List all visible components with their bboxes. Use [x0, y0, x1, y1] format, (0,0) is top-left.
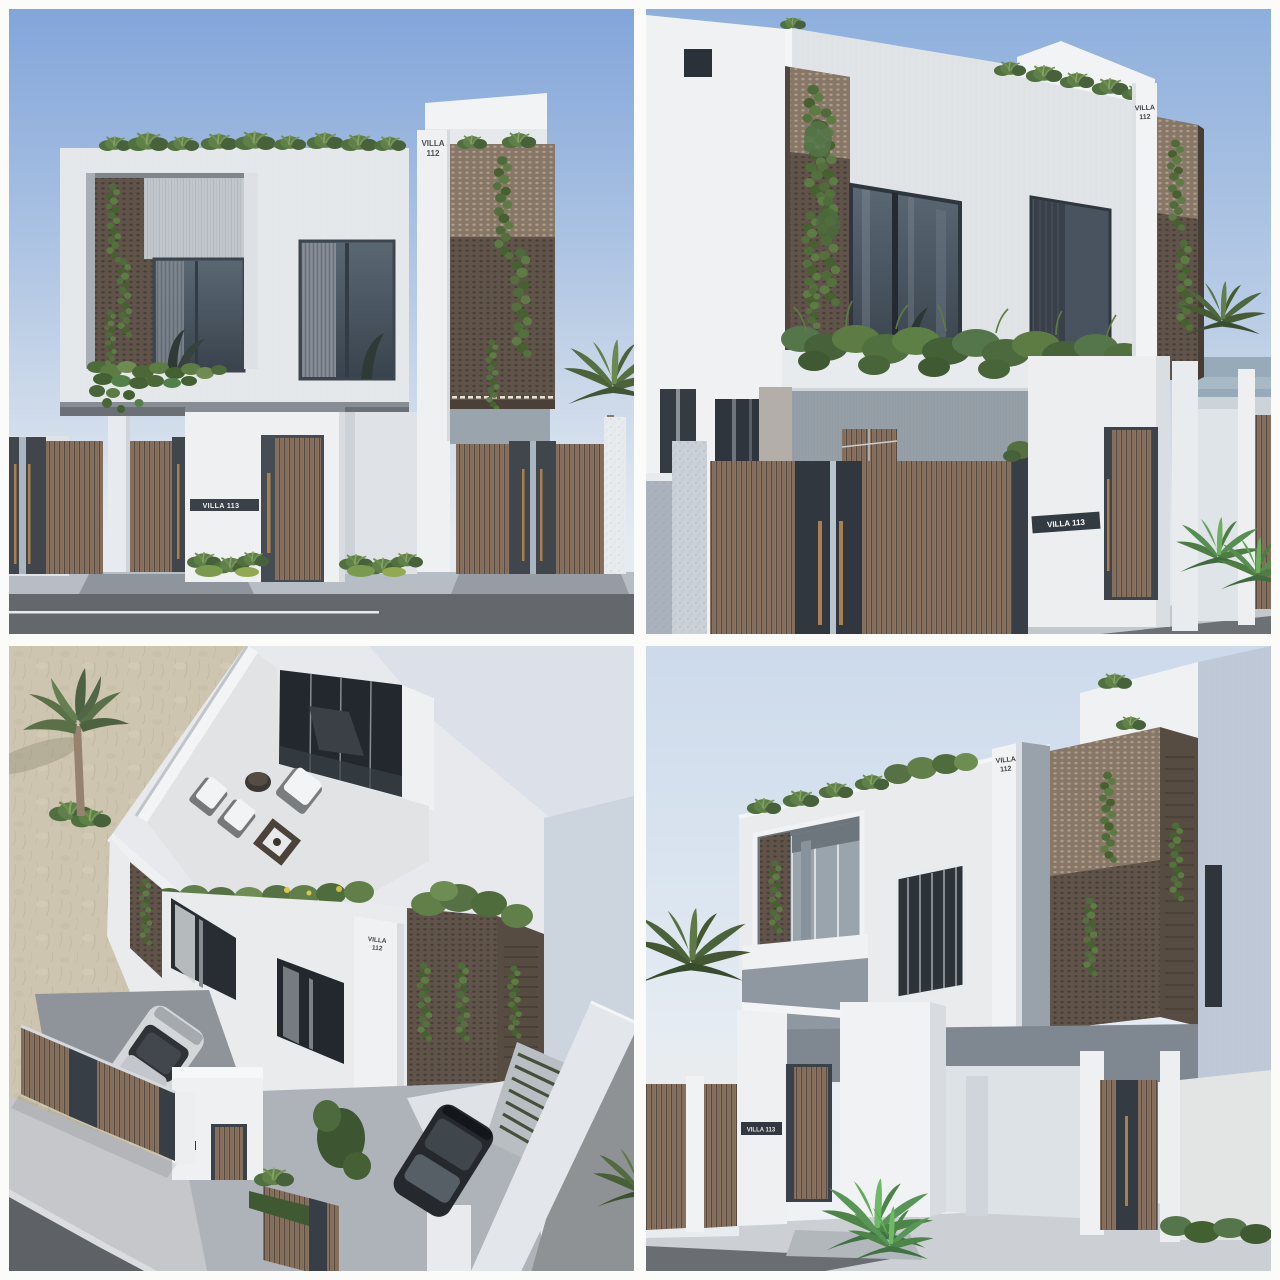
svg-text:VILLA 113: VILLA 113 — [203, 503, 240, 510]
svg-text:VILLA: VILLA — [421, 139, 444, 148]
svg-text:112: 112 — [427, 149, 440, 158]
svg-text:VILLA: VILLA — [1135, 104, 1156, 112]
svg-text:112: 112 — [372, 944, 384, 952]
svg-text:112: 112 — [1000, 765, 1012, 773]
svg-text:VILLA 113: VILLA 113 — [747, 1128, 776, 1134]
svg-text:112: 112 — [1139, 114, 1151, 122]
